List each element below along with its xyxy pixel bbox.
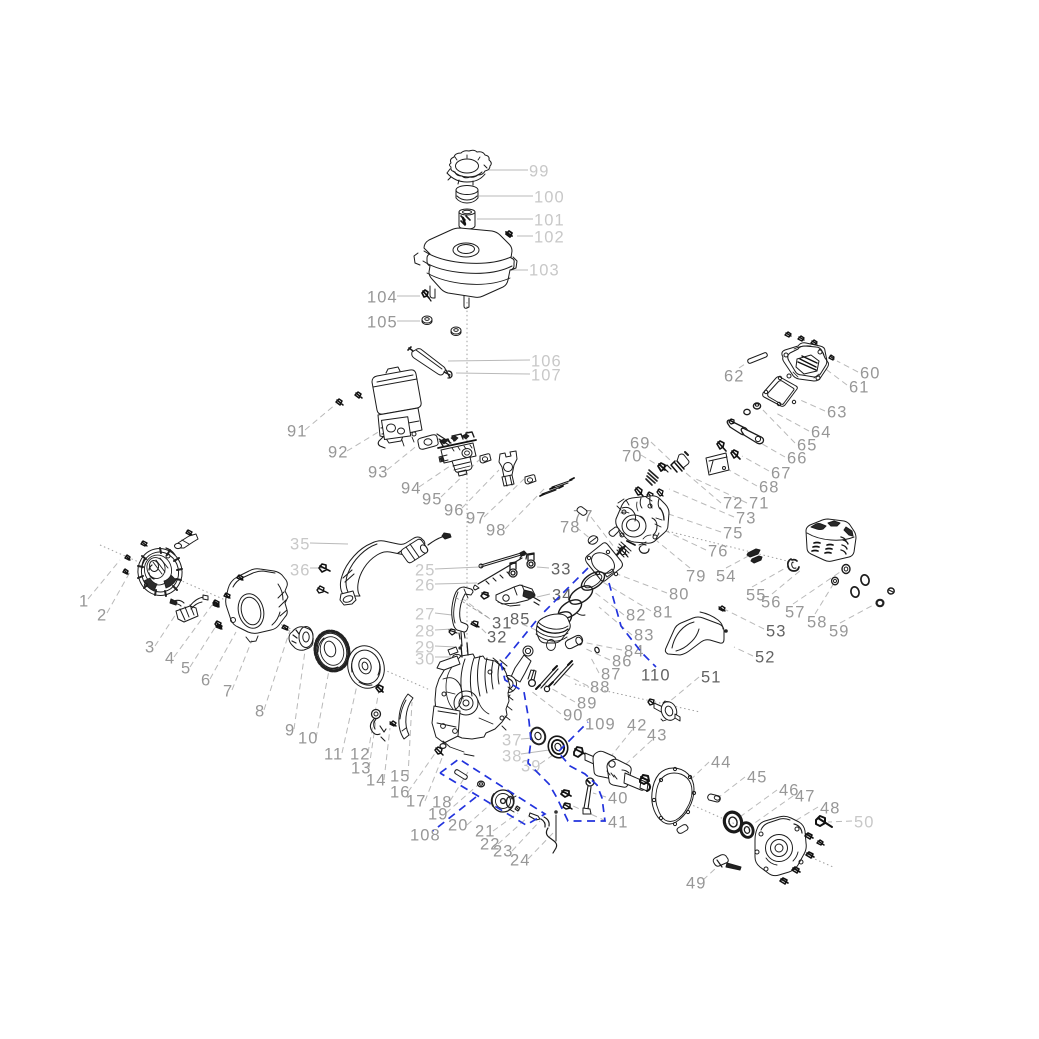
- svg-text:6: 6: [201, 671, 211, 689]
- svg-text:92: 92: [328, 443, 349, 461]
- svg-text:76: 76: [708, 542, 729, 560]
- svg-text:24: 24: [510, 851, 531, 869]
- svg-text:97: 97: [466, 509, 487, 527]
- svg-text:51: 51: [701, 668, 722, 686]
- svg-text:36: 36: [290, 561, 311, 579]
- svg-text:17: 17: [406, 792, 427, 810]
- svg-text:35: 35: [290, 535, 311, 553]
- svg-text:33: 33: [551, 560, 572, 578]
- svg-text:49: 49: [686, 874, 707, 892]
- svg-text:4: 4: [165, 649, 175, 667]
- svg-text:90: 90: [563, 706, 584, 724]
- svg-text:61: 61: [849, 378, 870, 396]
- svg-text:27: 27: [415, 605, 436, 623]
- svg-text:5: 5: [181, 659, 191, 677]
- svg-text:91: 91: [287, 422, 308, 440]
- svg-text:103: 103: [529, 261, 560, 279]
- svg-text:110: 110: [641, 666, 671, 684]
- svg-text:78: 78: [560, 518, 581, 536]
- svg-text:59: 59: [829, 622, 850, 640]
- svg-text:95: 95: [422, 490, 443, 508]
- svg-text:45: 45: [747, 768, 768, 786]
- svg-text:104: 104: [367, 288, 398, 306]
- svg-text:19: 19: [428, 805, 449, 823]
- svg-text:26: 26: [415, 576, 436, 594]
- svg-text:107: 107: [531, 366, 562, 384]
- svg-text:40: 40: [608, 789, 629, 807]
- svg-text:99: 99: [529, 162, 550, 180]
- svg-text:109: 109: [585, 715, 616, 733]
- svg-text:8: 8: [255, 702, 265, 720]
- svg-text:94: 94: [401, 479, 422, 497]
- svg-text:43: 43: [647, 726, 668, 744]
- svg-text:57: 57: [785, 603, 806, 621]
- svg-text:96: 96: [444, 501, 465, 519]
- svg-text:101: 101: [534, 211, 565, 229]
- svg-text:81: 81: [653, 603, 674, 621]
- svg-text:14: 14: [366, 771, 387, 789]
- svg-text:75: 75: [723, 524, 744, 542]
- svg-text:10: 10: [298, 729, 319, 747]
- svg-text:50: 50: [854, 813, 875, 831]
- svg-text:80: 80: [669, 585, 690, 603]
- svg-text:52: 52: [755, 648, 776, 666]
- svg-text:1: 1: [79, 592, 89, 610]
- svg-text:82: 82: [626, 606, 647, 624]
- svg-text:11: 11: [324, 745, 343, 763]
- svg-text:54: 54: [716, 567, 737, 585]
- svg-text:63: 63: [827, 403, 848, 421]
- svg-text:98: 98: [486, 521, 507, 539]
- svg-text:56: 56: [761, 593, 782, 611]
- svg-text:47: 47: [795, 787, 816, 805]
- svg-text:32: 32: [487, 628, 508, 646]
- svg-text:44: 44: [711, 753, 732, 771]
- svg-text:79: 79: [686, 567, 707, 585]
- svg-text:20: 20: [448, 816, 469, 834]
- svg-text:42: 42: [627, 716, 648, 734]
- svg-text:30: 30: [415, 650, 436, 668]
- svg-text:102: 102: [534, 228, 565, 246]
- svg-text:58: 58: [807, 613, 828, 631]
- svg-text:93: 93: [368, 463, 389, 481]
- svg-text:85: 85: [510, 610, 531, 628]
- svg-text:108: 108: [410, 826, 441, 844]
- svg-text:38: 38: [502, 747, 523, 765]
- svg-text:7: 7: [223, 682, 233, 700]
- svg-text:100: 100: [534, 188, 565, 206]
- svg-text:9: 9: [285, 721, 295, 739]
- svg-text:2: 2: [97, 606, 107, 624]
- svg-text:41: 41: [608, 813, 629, 831]
- svg-text:3: 3: [145, 638, 155, 656]
- svg-text:48: 48: [820, 799, 841, 817]
- svg-text:70: 70: [622, 447, 643, 465]
- svg-text:62: 62: [724, 367, 745, 385]
- svg-text:105: 105: [367, 313, 398, 331]
- svg-text:53: 53: [766, 622, 787, 640]
